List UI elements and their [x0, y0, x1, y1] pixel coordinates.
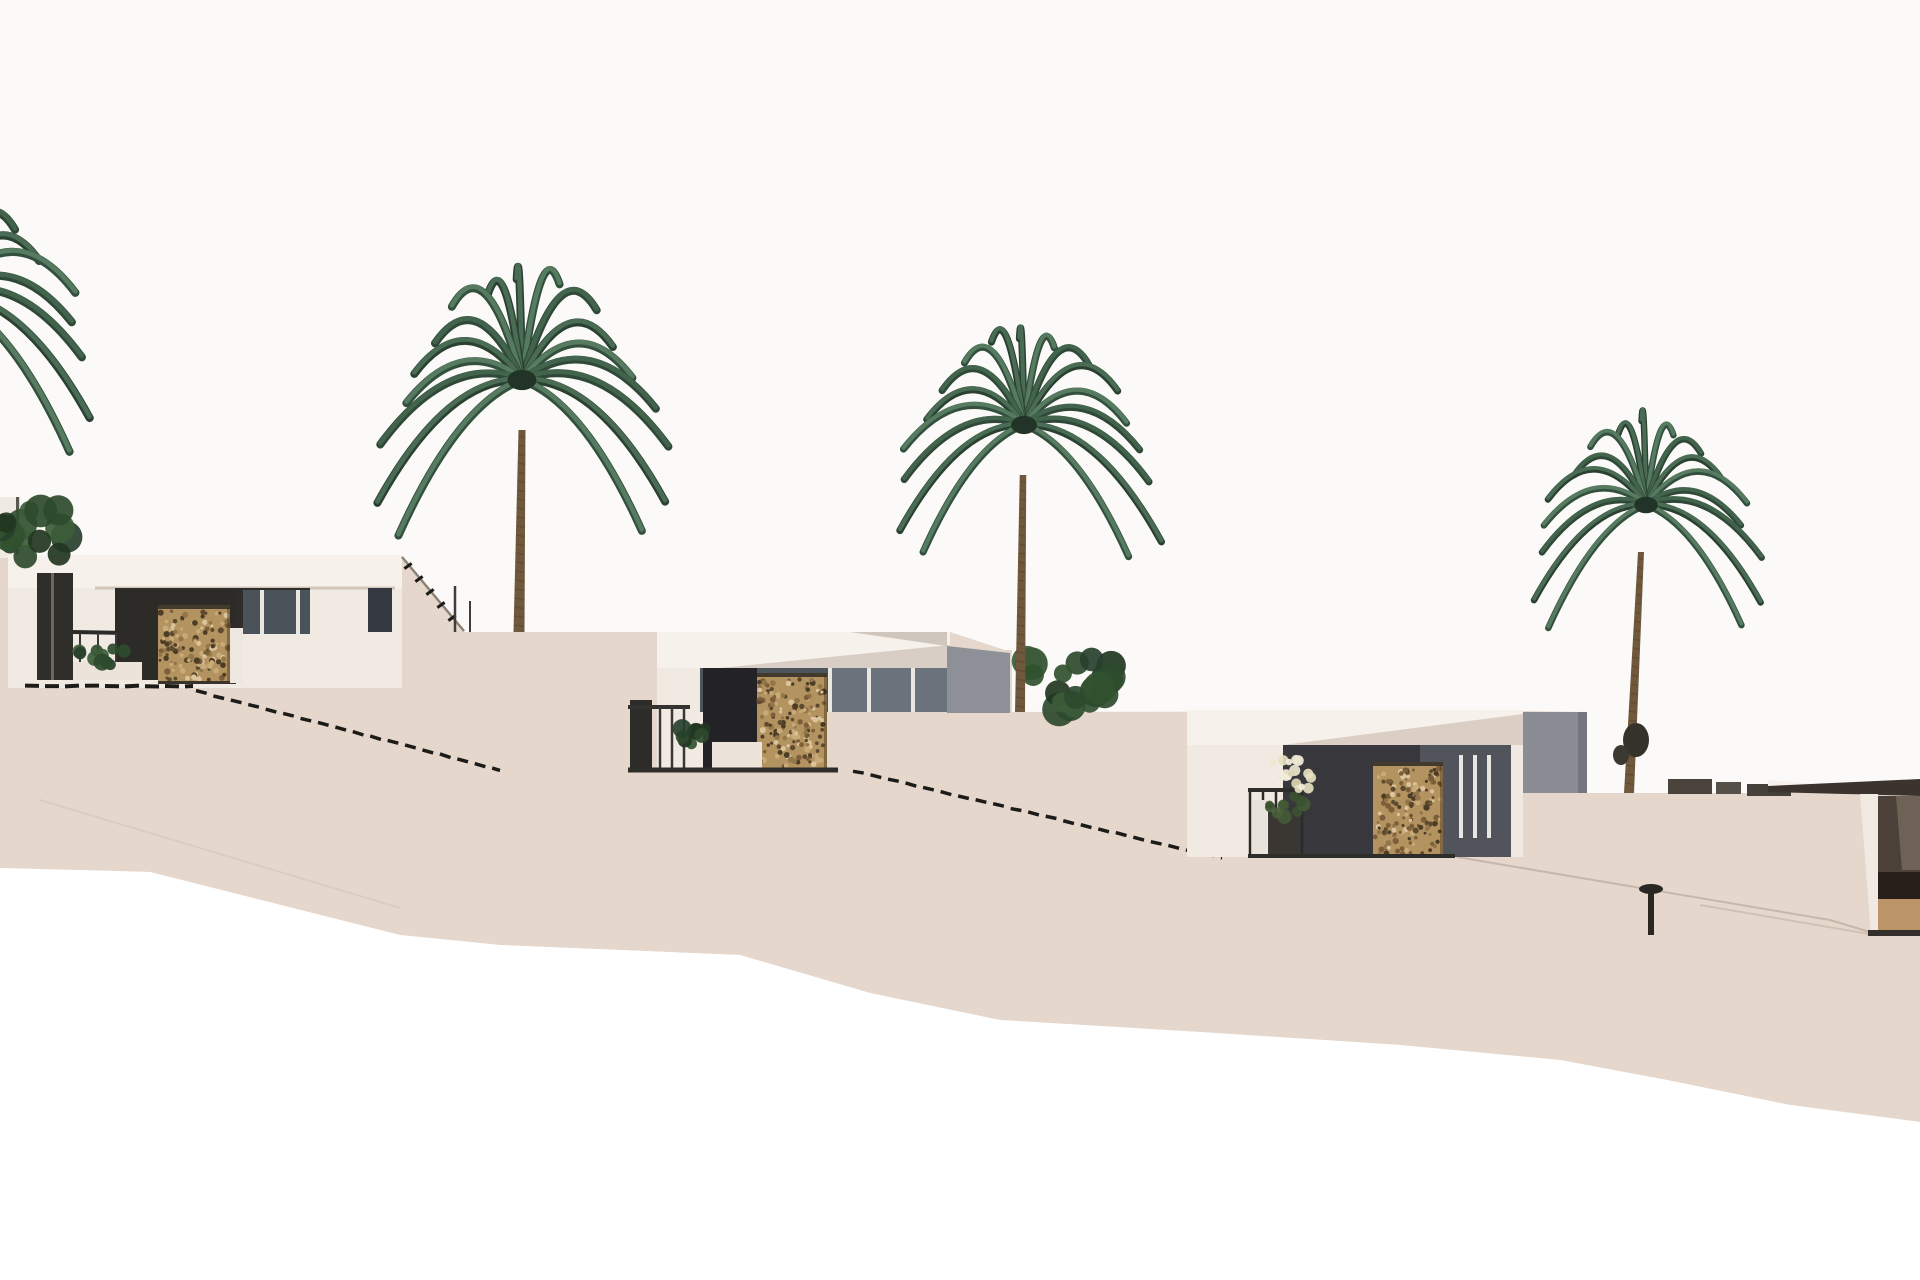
white-pillar	[1511, 745, 1523, 857]
palm-crown-core	[1011, 416, 1037, 434]
gray-edge	[1578, 712, 1587, 793]
gray-mass	[1523, 712, 1587, 793]
fence-posts	[671, 707, 674, 770]
mullions	[911, 668, 915, 712]
fence-panel	[1252, 800, 1267, 855]
side-window	[368, 588, 392, 632]
door-frames	[1487, 755, 1491, 838]
base-line	[25, 686, 193, 687]
gabion-wall	[756, 673, 833, 771]
mullions	[296, 590, 300, 634]
render-svg	[0, 0, 1920, 1280]
railing	[1878, 872, 1920, 899]
glass-right	[830, 668, 947, 712]
distant-wall-2	[1716, 782, 1741, 794]
pillar	[37, 573, 73, 680]
fence-posts	[1249, 790, 1252, 856]
gray-mass	[947, 646, 1010, 713]
white-post	[230, 628, 243, 683]
palm-crown-core	[1634, 497, 1658, 514]
palm-crown-core	[508, 370, 537, 390]
gabion-wall	[158, 605, 236, 684]
gabion-wall	[1373, 762, 1449, 858]
lamp-post	[1648, 892, 1654, 935]
door-frames	[1459, 755, 1463, 838]
fence-slab	[630, 700, 652, 772]
mullions	[828, 668, 832, 712]
mullions	[867, 668, 871, 712]
stair-post-2	[469, 601, 471, 632]
distant-wall-1	[1668, 779, 1712, 794]
stair-post	[454, 586, 457, 632]
fence-posts	[659, 707, 662, 770]
palm-3-trunk-bush-2	[1613, 745, 1629, 765]
floor	[1878, 899, 1920, 933]
architectural-render	[0, 0, 1920, 1280]
mullions	[260, 590, 264, 634]
railing	[73, 632, 130, 633]
pillar-seam	[51, 573, 54, 680]
door-frames	[1473, 755, 1477, 838]
